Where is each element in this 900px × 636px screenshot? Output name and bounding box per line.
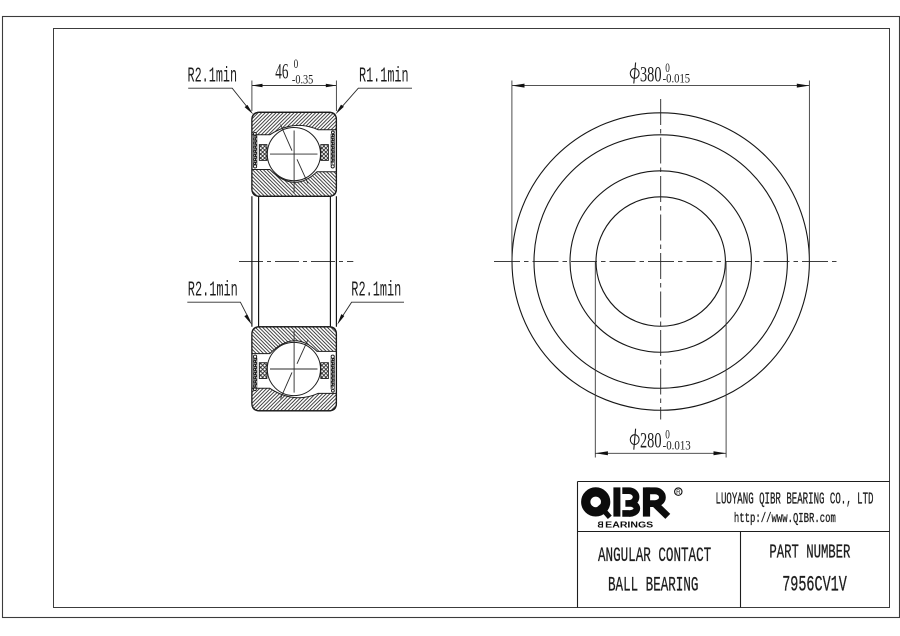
- svg-text:ANGULAR CONTACT: ANGULAR CONTACT: [598, 545, 711, 568]
- svg-text:R: R: [676, 489, 681, 496]
- svg-text:PART NUMBER: PART NUMBER: [769, 542, 850, 564]
- svg-text:B: B: [597, 520, 603, 530]
- svg-text:-0.015: -0.015: [663, 72, 691, 86]
- svg-text:380: 380: [640, 61, 662, 86]
- svg-text:R1.1min: R1.1min: [359, 65, 409, 89]
- svg-text:LUOYANG QIBR BEARING CO., LTD: LUOYANG QIBR BEARING CO., LTD: [716, 491, 874, 510]
- svg-text:R2.1min: R2.1min: [188, 280, 238, 303]
- svg-text:7956CV1V: 7956CV1V: [782, 573, 847, 598]
- svg-text:R2.1min: R2.1min: [351, 280, 401, 303]
- svg-text:EARINGS: EARINGS: [605, 520, 653, 530]
- svg-text:0: 0: [294, 57, 299, 71]
- svg-text:46: 46: [275, 59, 288, 84]
- svg-text:280: 280: [640, 428, 662, 453]
- svg-text:BALL BEARING: BALL BEARING: [608, 575, 698, 598]
- svg-text:-0.35: -0.35: [292, 72, 313, 86]
- svg-text:http://www.QIBR.com: http://www.QIBR.com: [734, 511, 836, 527]
- svg-text:R2.1min: R2.1min: [188, 65, 238, 89]
- svg-text:-0.013: -0.013: [663, 438, 691, 452]
